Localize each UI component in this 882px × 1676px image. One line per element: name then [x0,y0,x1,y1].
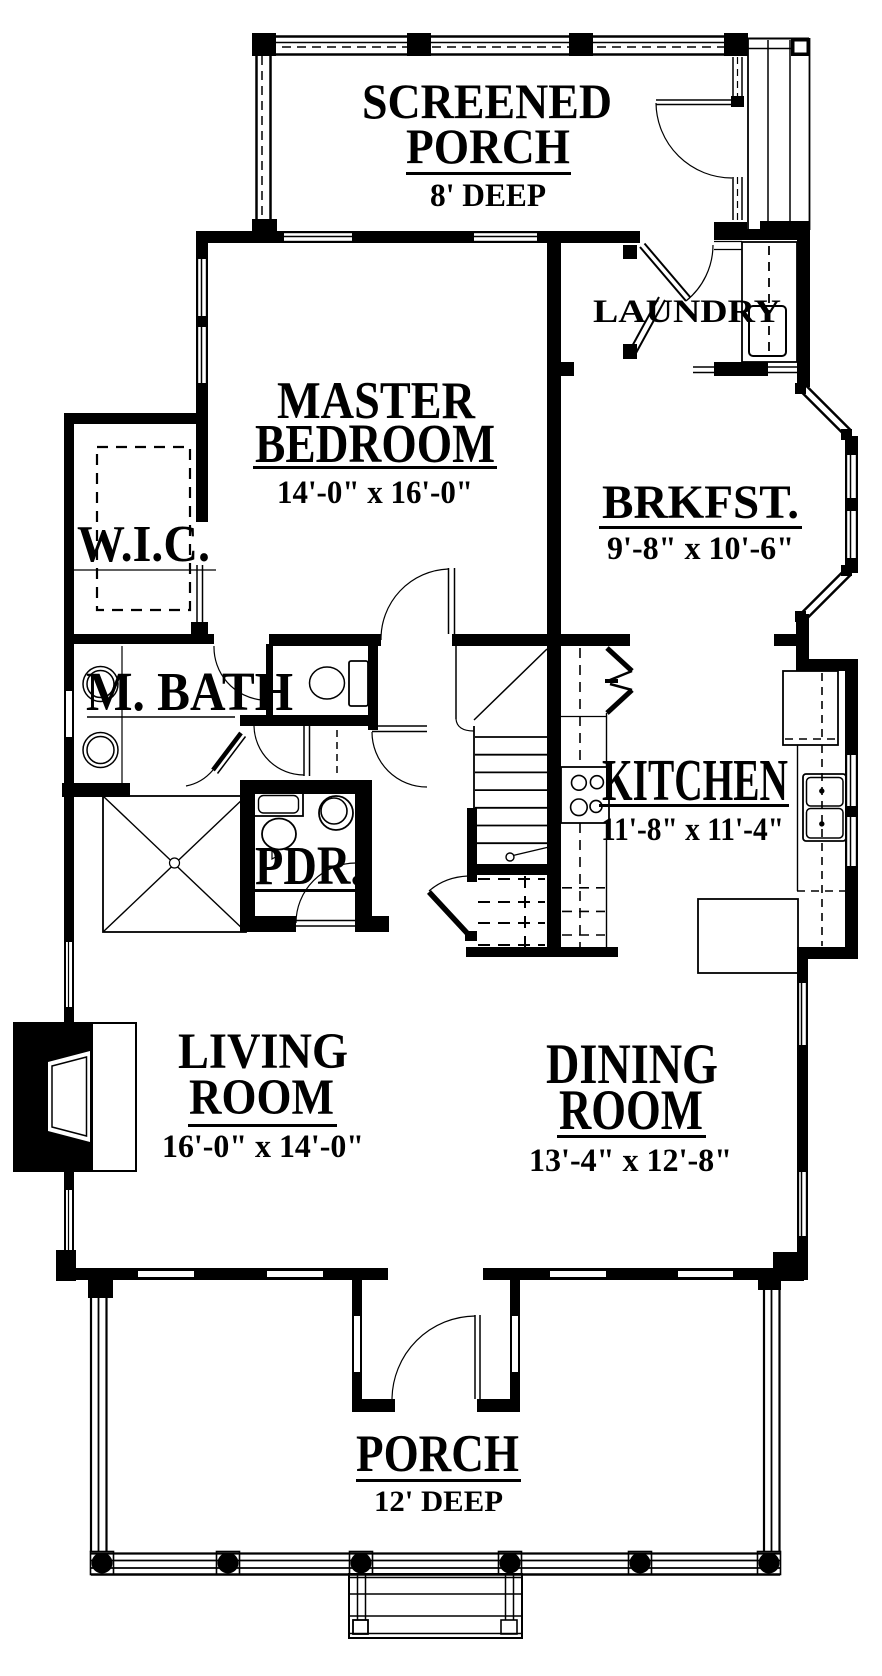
svg-text:LAUNDRY: LAUNDRY [593,294,781,330]
svg-text:PORCH: PORCH [356,1425,519,1483]
svg-text:14'-0" x 16'-0": 14'-0" x 16'-0" [277,475,473,511]
svg-text:13'-4" x 12'-8": 13'-4" x 12'-8" [529,1143,732,1179]
svg-text:BEDROOM: BEDROOM [255,413,495,474]
svg-text:9'-8" x 10'-6": 9'-8" x 10'-6" [607,531,794,567]
svg-text:M. BATH: M. BATH [86,661,293,722]
svg-text:W.I.C.: W.I.C. [77,516,210,573]
svg-text:ROOM: ROOM [559,1079,703,1142]
svg-text:16'-0" x 14'-0": 16'-0" x 14'-0" [162,1129,364,1165]
svg-text:KITCHEN: KITCHEN [602,747,788,813]
svg-text:ROOM: ROOM [189,1070,334,1126]
svg-text:PDR.: PDR. [255,835,362,896]
svg-text:12' DEEP: 12' DEEP [374,1485,503,1518]
svg-text:11'-8" x 11'-4": 11'-8" x 11'-4" [601,812,784,848]
svg-text:BRKFST.: BRKFST. [602,476,799,529]
svg-text:PORCH: PORCH [406,118,570,174]
svg-text:8' DEEP: 8' DEEP [430,178,546,214]
